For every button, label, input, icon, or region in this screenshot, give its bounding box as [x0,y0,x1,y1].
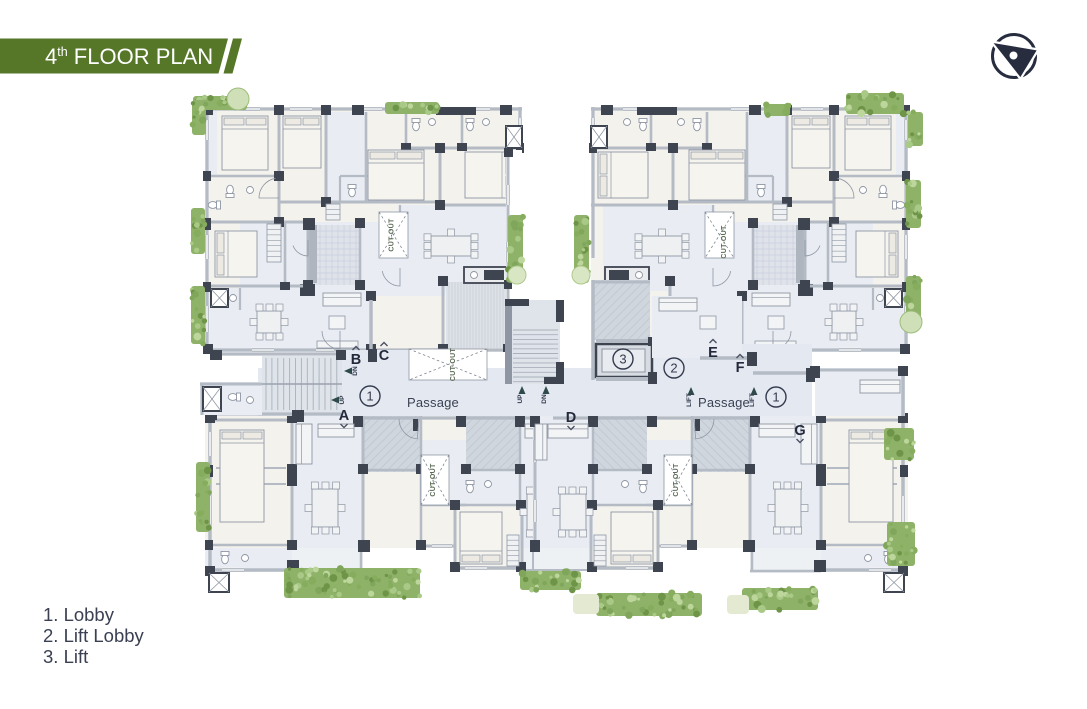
svg-text:E: E [708,345,718,361]
svg-text:LIFT: LIFT [749,393,756,407]
svg-text:F: F [736,360,745,376]
svg-text:3. Lift: 3. Lift [43,646,88,667]
svg-text:CUT-OUT: CUT-OUT [673,463,680,497]
svg-text:A: A [339,408,350,424]
svg-text:1. Lobby: 1. Lobby [43,604,115,625]
svg-text:G: G [794,423,805,439]
svg-text:4th FLOOR PLAN: 4th FLOOR PLAN [45,44,213,69]
svg-text:DN: DN [541,394,548,404]
svg-text:B: B [351,352,361,368]
svg-text:1: 1 [772,390,779,405]
svg-text:D: D [566,410,576,426]
svg-text:UP: UP [517,394,524,404]
svg-text:Passage: Passage [698,395,750,410]
svg-text:CUT-OUT: CUT-OUT [430,463,437,497]
svg-text:CUT-OUT: CUT-OUT [450,347,457,381]
svg-text:LIFT: LIFT [686,393,693,407]
svg-text:2: 2 [670,361,677,376]
svg-text:CUT-OUT: CUT-OUT [389,218,396,252]
svg-text:UP: UP [339,395,346,405]
svg-text:2. Lift Lobby: 2. Lift Lobby [43,625,145,646]
svg-text:3: 3 [619,352,626,367]
svg-text:CUT-OUT: CUT-OUT [721,225,728,259]
svg-text:C: C [379,348,390,364]
svg-text:1: 1 [366,389,373,404]
svg-text:Passage: Passage [407,395,459,410]
